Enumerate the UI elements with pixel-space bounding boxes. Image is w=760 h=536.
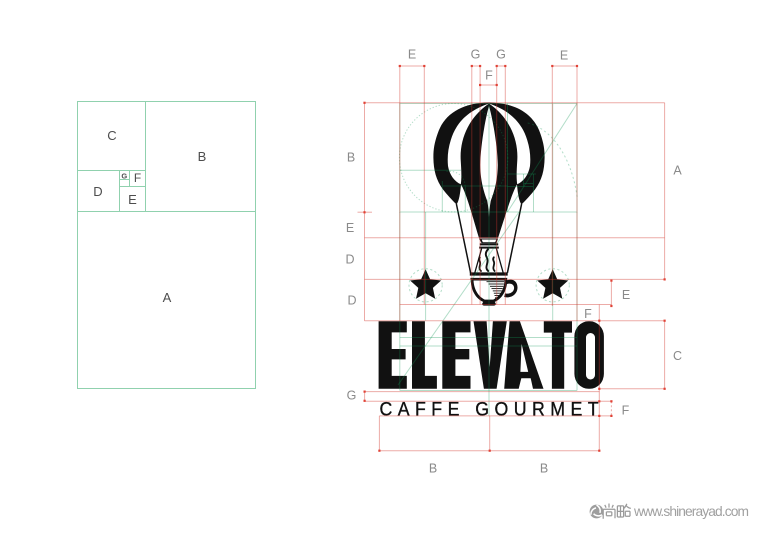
svg-text:B: B <box>429 462 437 476</box>
svg-text:F: F <box>584 307 592 321</box>
svg-text:F: F <box>134 171 141 185</box>
svg-text:B: B <box>347 151 355 165</box>
svg-text:D: D <box>345 253 354 267</box>
svg-text:E: E <box>128 192 137 207</box>
svg-text:A: A <box>673 164 682 178</box>
svg-text:A: A <box>163 290 172 305</box>
svg-text:E: E <box>346 221 354 235</box>
svg-text:B: B <box>198 149 207 164</box>
svg-text:G: G <box>496 48 506 62</box>
svg-text:G: G <box>121 171 127 180</box>
svg-text:B: B <box>540 462 548 476</box>
svg-text:E: E <box>408 48 416 62</box>
svg-text:F: F <box>485 69 493 83</box>
svg-text:E: E <box>560 49 568 63</box>
svg-text:C: C <box>107 128 116 143</box>
svg-text:E: E <box>622 288 630 302</box>
svg-text:D: D <box>347 294 356 308</box>
svg-text:G: G <box>471 48 481 62</box>
svg-text:F: F <box>622 404 630 418</box>
svg-text:C: C <box>673 349 682 363</box>
svg-text:www.shinerayad.com: www.shinerayad.com <box>633 504 749 519</box>
svg-text:CAFFE GOURMET: CAFFE GOURMET <box>380 399 605 421</box>
svg-text:G: G <box>347 389 357 403</box>
svg-text:D: D <box>93 184 102 199</box>
